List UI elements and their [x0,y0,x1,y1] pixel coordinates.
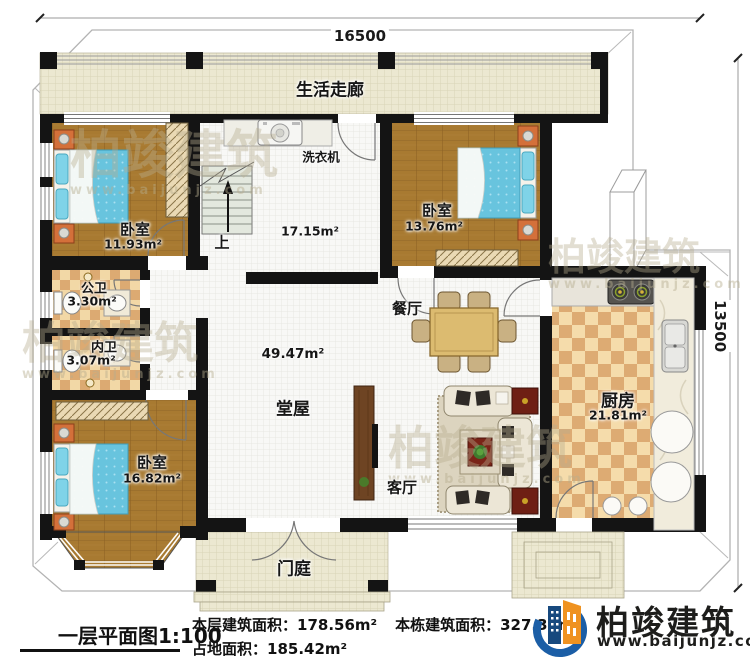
chair [438,292,460,310]
area-summary-line1: 本层建筑面积：178.56m²本栋建筑面积：327.38m² [192,614,580,635]
tv [372,424,378,468]
floor-plan-graphic [0,0,750,662]
toilet-tank [54,292,62,314]
label-bedroom2-area: 13.76m² [405,219,463,234]
chair [468,292,490,310]
dimension-height: 13500 [708,300,732,352]
label-dining: 餐厅 [392,298,422,319]
label-hall-area: 49.47m² [262,346,325,362]
pillow [522,152,534,180]
label-bedroom2: 卧室 [422,200,452,221]
chair [498,320,516,342]
plant [359,477,369,487]
chair [412,320,430,342]
washing-machine [224,120,332,146]
stool [603,497,621,515]
window-living-south [408,516,517,532]
window-bath-public-west [38,292,53,318]
floor-plan-canvas: 柏竣建筑 www.baijunjz.com 柏竣建筑 www.baijunjz.… [0,0,750,662]
brand-logo-icon [532,592,594,662]
area-summary-line2: 占地面积：185.42m² [192,638,347,659]
pillow [56,154,68,184]
stool [629,497,647,515]
label-corridor: 生活走廊 [296,76,364,101]
pillow [56,479,68,506]
label-bedroom3-area: 16.82m² [123,471,181,486]
label-hall: 堂屋 [276,395,310,420]
window-bath-private-west [38,344,53,370]
dining-table [430,308,498,356]
label-washing-machine: 洗衣机 [302,147,340,166]
label-laundry-area: 17.15m² [281,224,339,239]
label-stairs-up: 上 [214,232,229,253]
pillow [56,189,68,219]
label-bath-private-area: 3.07m² [66,353,115,368]
label-living: 客厅 [387,477,417,498]
round-table [651,462,691,502]
floor-area-label: 本层建筑面积： [192,616,297,634]
chair [438,354,460,372]
wardrobe [56,402,148,420]
wardrobe [436,250,518,266]
label-bath-public-area: 3.30m² [67,294,116,309]
title-underline [20,649,180,652]
pillow [522,185,534,213]
window-bedroom1-north [64,112,170,125]
floor-area-value: 178.56m² [297,616,377,634]
land-area-label: 占地面积： [192,640,267,658]
label-bedroom1-area: 11.93m² [104,237,162,252]
window-bedroom2-north [414,112,514,125]
land-area-value: 185.42m² [267,640,347,658]
pillow [56,448,68,475]
wardrobe [166,123,188,217]
label-porch: 门庭 [277,555,311,580]
total-area-label: 本栋建筑面积： [395,616,500,634]
label-kitchen-area: 21.81m² [589,408,647,423]
window-bedroom3-west [38,452,53,514]
stairs [200,162,254,234]
toilet-tank [54,350,62,372]
round-table [651,411,693,453]
brand-website: www.baijunjz.com [597,632,750,650]
label-bedroom3: 卧室 [137,452,167,473]
dimension-width: 16500 [331,27,389,45]
chair [468,354,490,372]
